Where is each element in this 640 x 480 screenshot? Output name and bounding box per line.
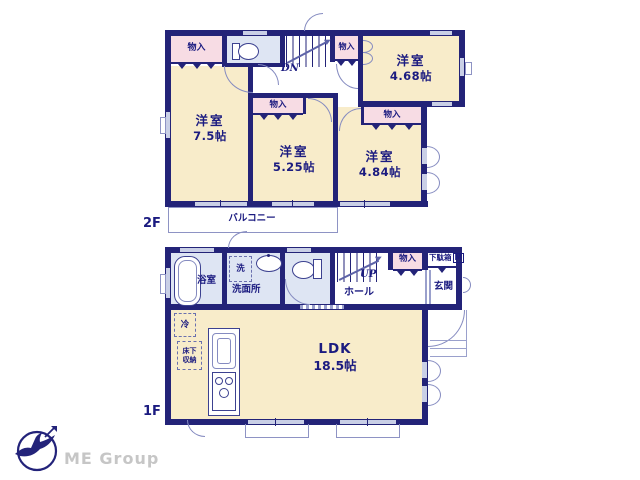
company-name: ME Group — [64, 449, 159, 468]
logo-area: ME Group — [0, 0, 640, 480]
floor-plan-canvas: 物入 物入 物入 物入 洋室 4.68帖 洋室 7.5帖 洋室 5.25帖 洋室… — [0, 0, 640, 480]
bird-logo-icon — [12, 424, 64, 476]
